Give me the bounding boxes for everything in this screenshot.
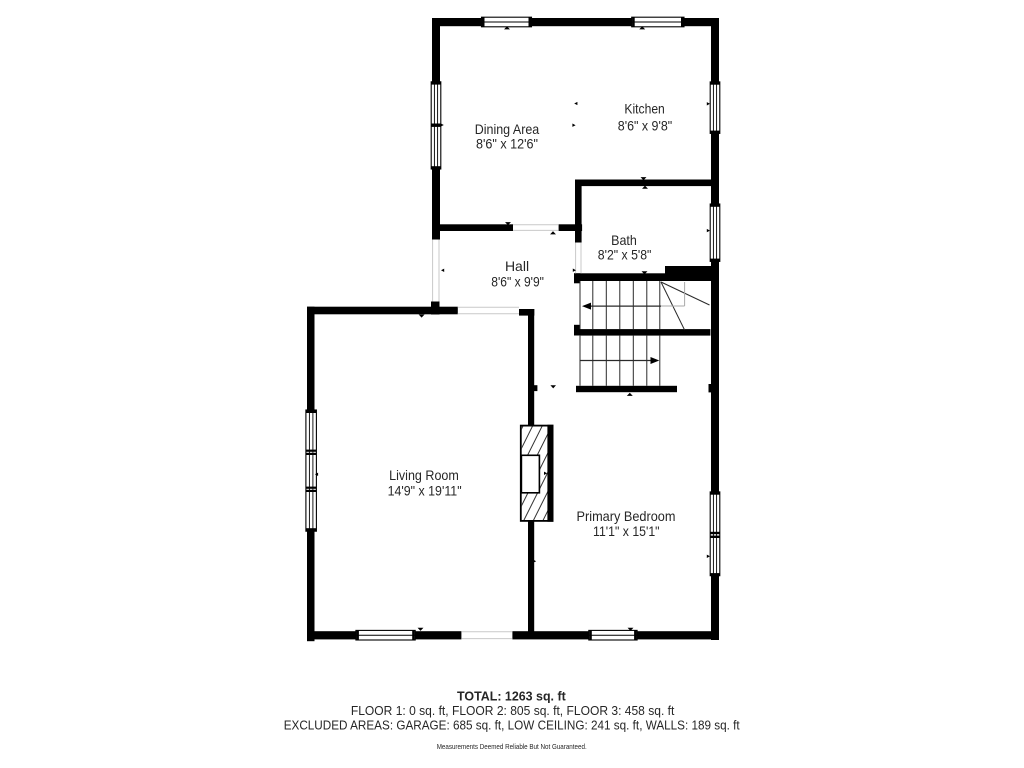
svg-text:Measurements Deemed Reliable B: Measurements Deemed Reliable But Not Gua…	[437, 742, 587, 751]
svg-text:8'6" x 12'6": 8'6" x 12'6"	[476, 135, 538, 151]
svg-text:8'2" x 5'8": 8'2" x 5'8"	[598, 246, 652, 262]
svg-text:Primary Bedroom: Primary Bedroom	[577, 508, 676, 524]
svg-text:8'6" x 9'8": 8'6" x 9'8"	[618, 117, 672, 133]
svg-text:Hall: Hall	[505, 258, 529, 274]
svg-text:Living Room: Living Room	[389, 467, 459, 483]
svg-text:8'6" x 9'9": 8'6" x 9'9"	[491, 273, 544, 289]
svg-text:Kitchen: Kitchen	[624, 100, 664, 116]
svg-text:FLOOR 1: 0 sq. ft, FLOOR 2: 80: FLOOR 1: 0 sq. ft, FLOOR 2: 805 sq. ft, …	[351, 704, 675, 718]
svg-text:14'9" x 19'11": 14'9" x 19'11"	[388, 482, 462, 498]
svg-text:Dining Area: Dining Area	[475, 121, 540, 137]
svg-text:11'1" x 15'1": 11'1" x 15'1"	[593, 523, 660, 539]
svg-text:EXCLUDED AREAS: GARAGE: 685 sq: EXCLUDED AREAS: GARAGE: 685 sq. ft, LOW …	[284, 718, 740, 732]
svg-text:TOTAL: 1263 sq. ft: TOTAL: 1263 sq. ft	[457, 689, 566, 704]
